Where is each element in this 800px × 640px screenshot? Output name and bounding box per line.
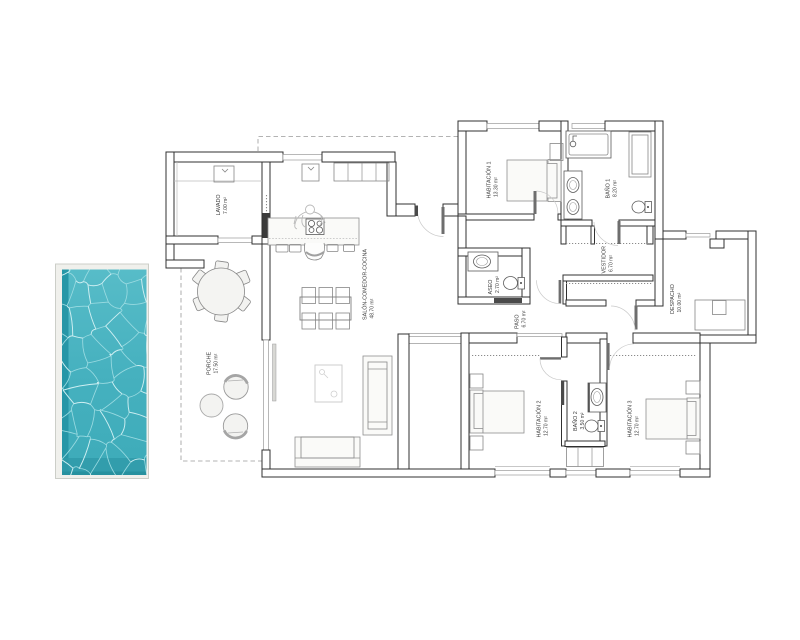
svg-text:17.50 m²: 17.50 m²: [213, 353, 219, 373]
svg-text:12.70 m²: 12.70 m²: [543, 416, 549, 436]
svg-text:6.70 m²: 6.70 m²: [521, 310, 527, 327]
svg-text:PORCHE: PORCHE: [207, 352, 213, 375]
svg-text:LAVADO: LAVADO: [216, 194, 222, 215]
svg-text:6.70 m²: 6.70 m²: [608, 255, 614, 272]
svg-text:10.00 m²: 10.00 m²: [677, 292, 683, 312]
svg-text:2.70 m²: 2.70 m²: [495, 276, 501, 293]
svg-text:48.70 m²: 48.70 m²: [369, 298, 375, 318]
svg-text:BAÑO 2: BAÑO 2: [572, 411, 579, 431]
svg-text:ASEO: ASEO: [488, 280, 494, 295]
svg-text:HABITACIÓN 2: HABITACIÓN 2: [536, 400, 543, 437]
svg-text:PASO: PASO: [515, 314, 521, 329]
svg-text:HABITACIÓN 1: HABITACIÓN 1: [486, 161, 493, 198]
svg-text:DESPACHO: DESPACHO: [670, 284, 676, 314]
svg-text:13.30 m²: 13.30 m²: [493, 177, 499, 197]
svg-text:12.70 m²: 12.70 m²: [634, 416, 640, 436]
svg-text:3.50 m²: 3.50 m²: [580, 412, 586, 429]
svg-text:SALÓN-COMEDOR-COCINA: SALÓN-COMEDOR-COCINA: [362, 249, 369, 320]
svg-text:8.20 m²: 8.20 m²: [612, 180, 618, 197]
svg-text:VESTIDOR: VESTIDOR: [602, 246, 608, 274]
svg-text:HABITACIÓN 3: HABITACIÓN 3: [627, 400, 634, 437]
svg-text:BAÑO 1: BAÑO 1: [605, 179, 612, 199]
svg-text:7.00 m²: 7.00 m²: [223, 197, 229, 214]
